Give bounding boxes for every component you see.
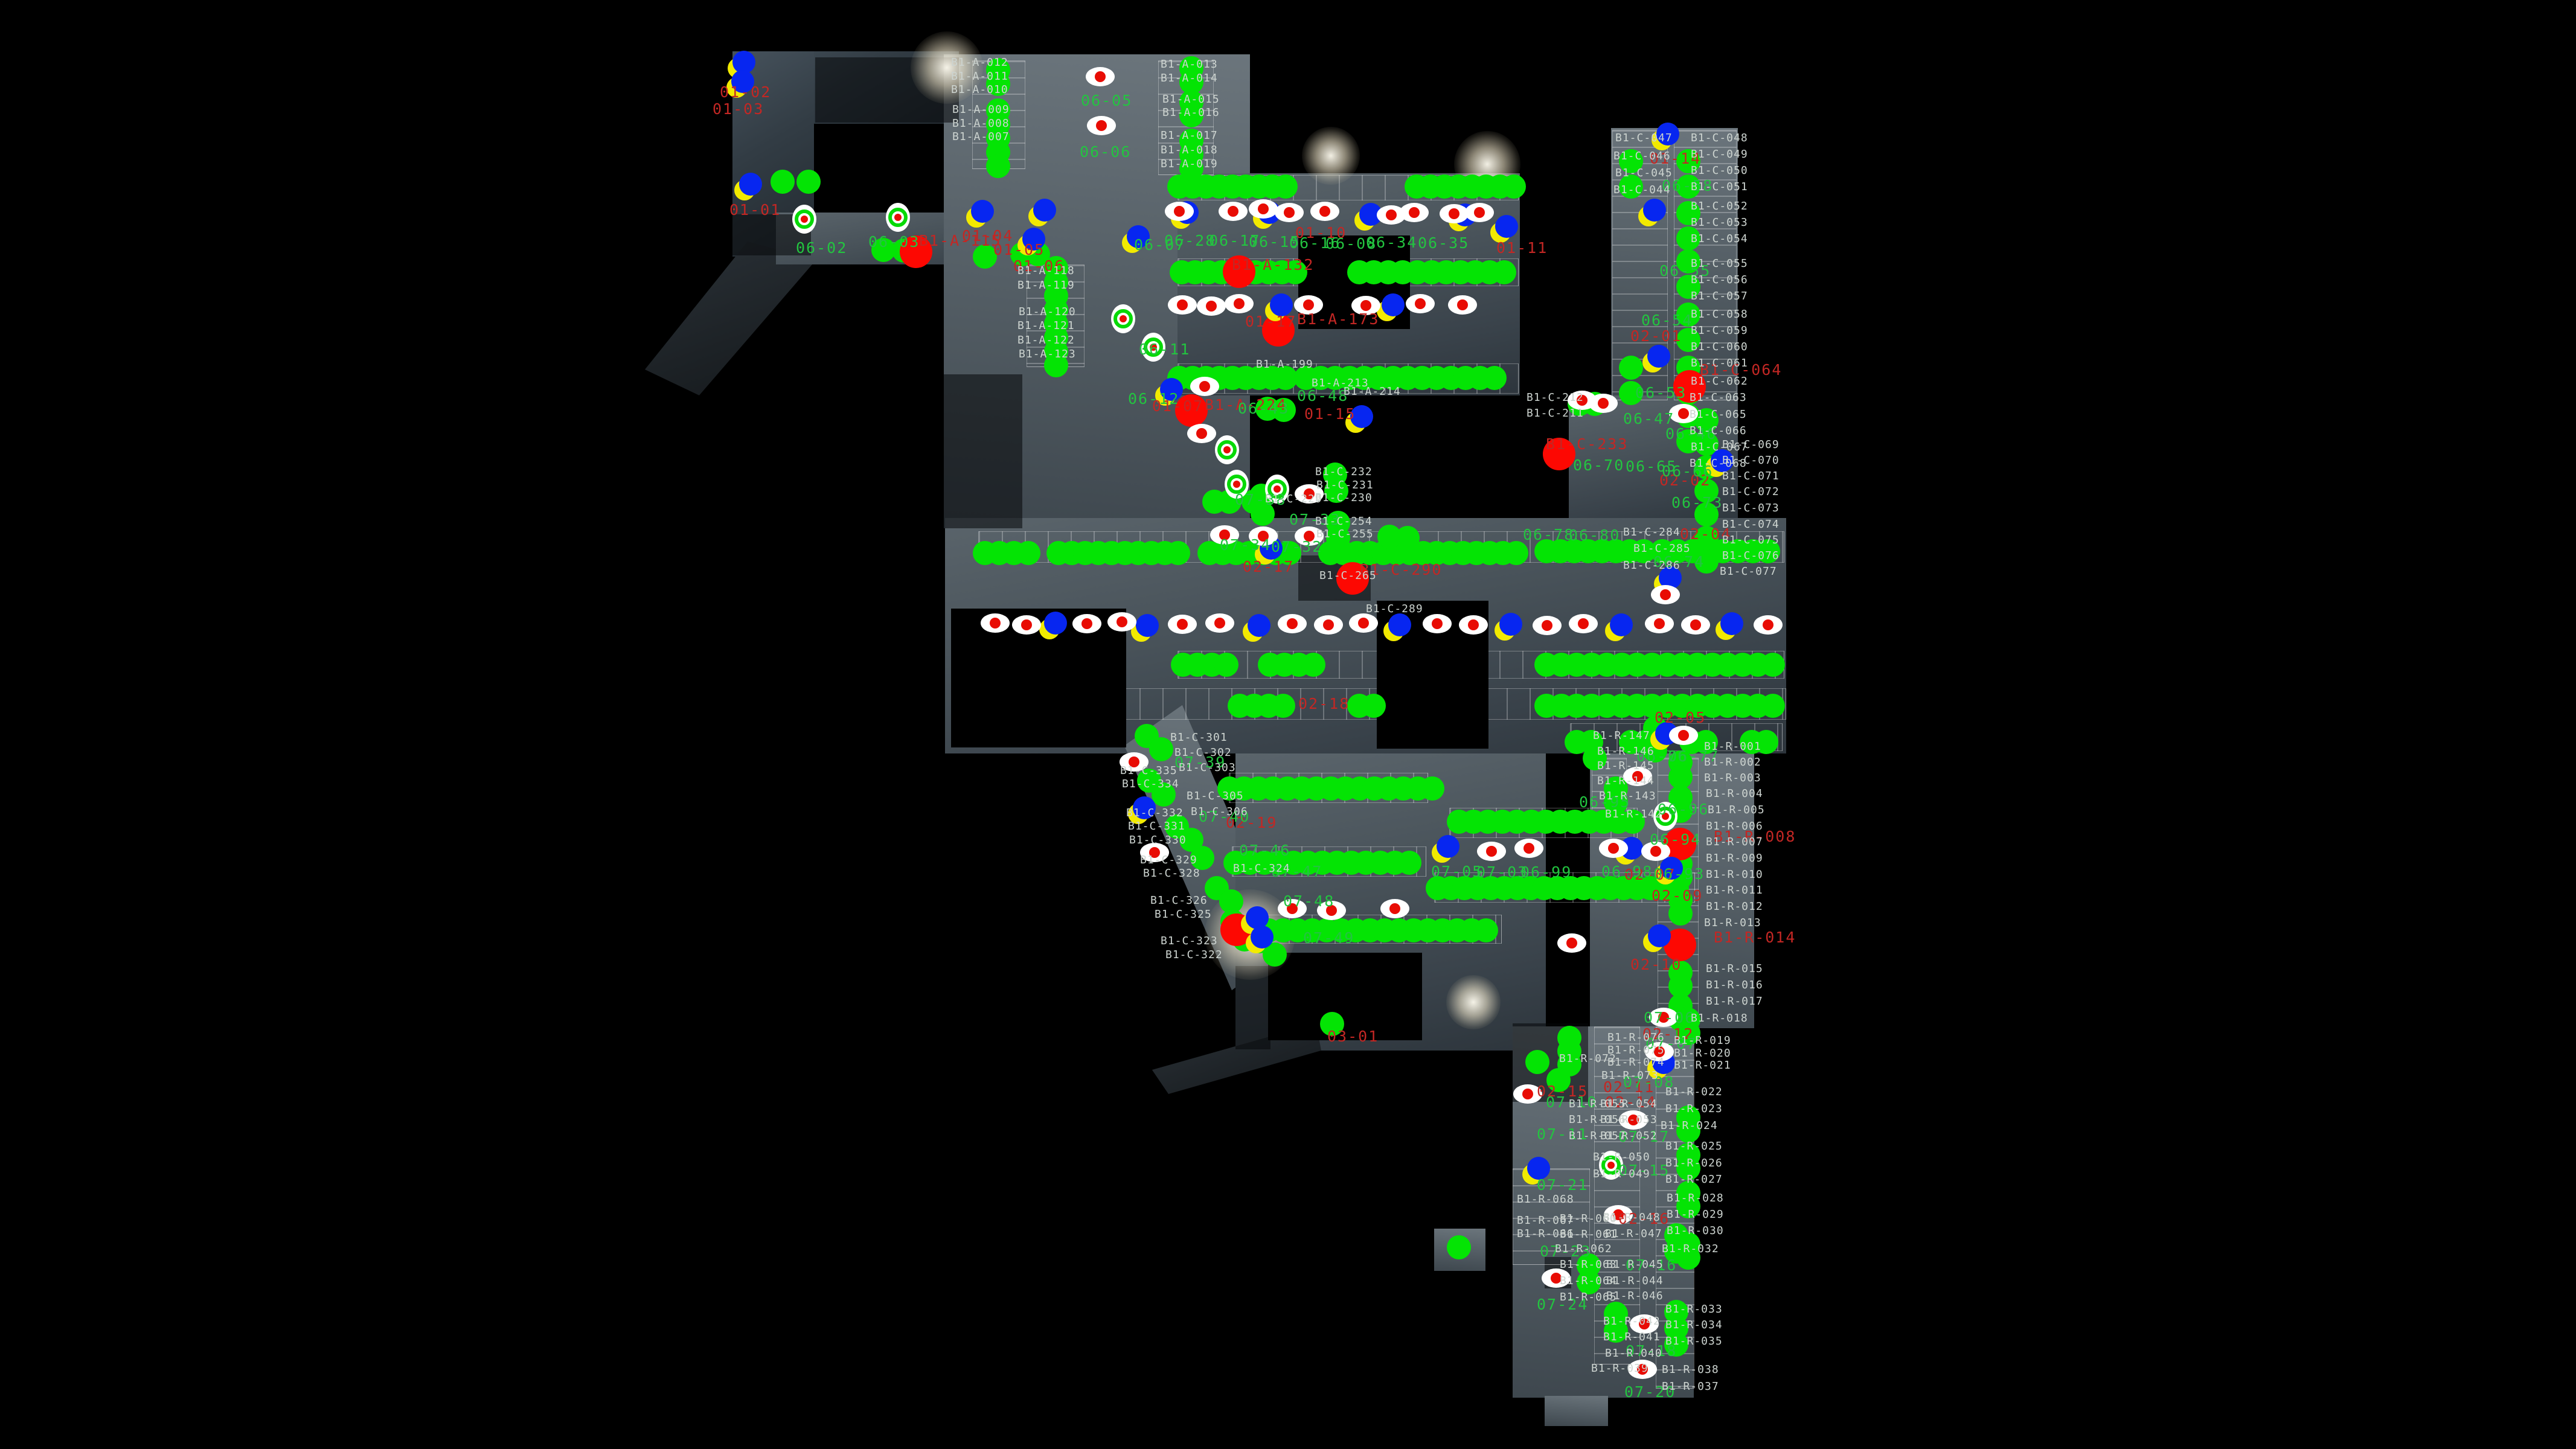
checker-target-marker[interactable] [1205,613,1234,633]
bay-label-white: B1-R-068 [1517,1194,1574,1205]
scan-marker-green[interactable] [1761,694,1785,718]
checker-target-marker[interactable] [1087,116,1116,135]
scan-marker-green[interactable] [1504,541,1528,565]
bay-label-white: B1-R-054 [1600,1099,1658,1110]
checker-target-ring-marker[interactable] [1111,304,1135,333]
bay-label-white: B1-R-004 [1706,788,1763,799]
bay-label-white: B1-R-019 [1674,1035,1731,1046]
bay-label-white: B1-C-072 [1722,487,1780,497]
floor-shadow [944,374,1022,528]
scan-label-green: 06-35 [1418,235,1469,251]
scan-label-red: 02-18 [1298,696,1350,711]
bay-label-white: B1-C-322 [1165,950,1223,961]
bay-label-white: B1-A-015 [1162,94,1220,105]
checker-target-ring-marker[interactable] [792,205,816,234]
bay-label-white: B1-C-050 [1691,165,1748,176]
sphere-target-marker[interactable] [1044,612,1067,635]
bay-label-white: B1-C-330 [1129,835,1187,846]
bay-label-white: B1-R-142 [1605,809,1662,820]
bay-label-white: B1-R-028 [1667,1193,1724,1204]
bay-label-white: B1-A-118 [1017,266,1075,277]
scan-label-green: 06-34 [1366,235,1417,250]
bay-label-white: B1-C-057 [1691,291,1748,302]
scan-label-green: 06-12 [1128,391,1179,406]
scan-label-red: 02-09 [1652,888,1703,903]
scan-label-green: 06-03 [868,234,920,249]
bay-label-white: B1-C-048 [1691,133,1748,144]
bay-label-white: B1-C-069 [1722,440,1780,450]
checker-target-marker[interactable] [1533,616,1562,635]
bay-label-white: B1-R-017 [1706,996,1763,1007]
bay-label-white: B1-R-052 [1600,1131,1658,1142]
sphere-target-marker[interactable] [739,173,762,196]
checker-target-marker[interactable] [1514,839,1543,858]
sphere-target-marker[interactable] [1643,199,1666,222]
scan-marker-green[interactable] [1274,174,1298,199]
checker-target-ring-marker[interactable] [886,203,910,232]
sphere-target-marker[interactable] [1251,926,1274,948]
checker-target-marker[interactable] [1190,377,1219,396]
bay-label-white: B1-C-324 [1233,863,1290,874]
bay-label-white: B1-A-007 [952,132,1010,142]
scan-marker-green[interactable] [1362,694,1386,718]
bay-label-white: B1-A-119 [1017,280,1075,291]
bay-label-white: B1-C-071 [1722,471,1780,482]
scan-label-red: B1-A-173 [1297,312,1379,327]
bay-label-white: B1-R-053 [1600,1115,1658,1125]
scan-label-green: 07-34 [1220,537,1271,552]
scan-label-green: 06-73 [1671,495,1723,510]
bay-label-white: B1-C-289 [1366,604,1423,615]
bay-label-white: B1-R-022 [1665,1087,1723,1098]
bay-label-white: B1-C-077 [1720,566,1777,577]
bay-label-white: B1-C-074 [1722,519,1780,530]
bay-label-white: B1-A-013 [1161,59,1218,70]
bay-label-white: B1-A-008 [952,118,1010,129]
bay-label-white: B1-C-049 [1691,149,1748,160]
bay-label-white: B1-C-051 [1691,182,1748,193]
bay-label-white: B1-C-255 [1316,529,1374,540]
bay-label-white: B1-R-003 [1704,773,1761,784]
checker-target-marker[interactable] [1557,933,1586,953]
bay-label-white: B1-R-026 [1665,1158,1723,1169]
checker-target-marker[interactable] [1278,614,1307,633]
scan-label-red: 02-05 [1655,710,1706,725]
checker-target-marker[interactable] [1669,726,1698,745]
scan-label-green: 07-49 [1303,930,1354,945]
bay-label-white: B1-A-018 [1161,145,1218,156]
checker-target-marker[interactable] [1187,424,1216,443]
scan-label-green: 07-46 [1239,843,1290,858]
scan-label-green: 07-32 [1271,539,1322,554]
sphere-target-marker[interactable] [1499,613,1522,636]
checker-target-marker[interactable] [1477,842,1506,861]
scan-label-green: 07-03 [1476,865,1528,880]
bay-label-white: B1-C-058 [1691,309,1748,320]
bay-label-white: B1-R-033 [1665,1304,1723,1315]
bay-label-white: B1-C-229 [1265,494,1322,505]
bay-label-white: B1-C-044 [1613,185,1671,196]
bay-label-white: B1-C-303 [1179,763,1236,773]
checker-target-marker[interactable] [1107,612,1136,632]
bay-label-white: B1-R-076 [1607,1032,1665,1043]
bay-label-white: B1-R-040 [1605,1348,1662,1359]
scan-marker-green[interactable] [1149,737,1173,761]
bay-label-white: B1-A-012 [951,57,1008,68]
checker-target-marker[interactable] [1459,615,1488,635]
scan-label-red: 02-01 [1630,328,1682,344]
scan-label-green: 06-99 [1520,865,1572,880]
scan-marker-green[interactable] [1166,541,1190,565]
bay-label-white: B1-C-212 [1527,392,1584,403]
scan-marker-green[interactable] [796,170,821,194]
bay-label-white: B1-C-059 [1691,325,1748,336]
scan-label-red: 02-10 [1630,957,1682,972]
bay-label-white: B1-R-146 [1597,746,1655,757]
checker-target-marker[interactable] [1400,203,1429,222]
bay-label-white: B1-R-001 [1704,741,1761,752]
bay-label-white: B1-R-015 [1706,964,1763,974]
bay-label-white: B1-C-054 [1691,234,1748,245]
bay-label-white: B1-C-325 [1155,909,1212,920]
bay-label-white: B1-R-023 [1665,1104,1723,1115]
bay-label-white: B1-A-011 [951,71,1008,82]
checker-target-marker[interactable] [1440,204,1469,223]
checker-target-marker[interactable] [1086,67,1115,86]
bay-label-white: B1-R-027 [1665,1174,1723,1185]
sphere-target-marker[interactable] [1382,293,1405,316]
bay-label-white: B1-R-032 [1662,1244,1719,1255]
bay-label-white: B1-C-331 [1128,821,1185,832]
scan-label-red: 01-17 [1245,314,1296,329]
bay-label-white: B1-R-035 [1665,1336,1723,1347]
scan-label-green: 07-06 [1644,1010,1695,1025]
scan-marker-green[interactable] [986,154,1010,178]
bay-label-white: B1-R-020 [1674,1048,1731,1059]
bay-label-white: B1-C-065 [1690,409,1747,420]
scan-label-green: 06-53 [1635,385,1687,400]
bay-label-white: B1-C-254 [1315,516,1373,527]
light-flare [1302,127,1360,185]
bay-label-white: B1-C-335 [1120,766,1177,776]
scan-marker-green[interactable] [1761,653,1785,677]
bay-label-white: B1-C-060 [1691,342,1748,353]
bay-label-white: B1-C-334 [1122,779,1179,790]
scan-label-green: 06-48 [1297,388,1348,403]
sphere-target-marker[interactable] [1495,215,1518,238]
checker-target-marker[interactable] [1406,294,1435,313]
sphere-target-marker[interactable] [971,200,994,223]
scan-marker-green[interactable] [1214,653,1238,677]
bay-label-white: B1-A-009 [952,104,1010,115]
bay-label-white: B1-C-302 [1174,747,1232,758]
bay-label-white: B1-R-011 [1706,885,1763,896]
scan-label-red: B1-R-014 [1714,930,1796,945]
scan-label-green: 06-06 [1080,144,1131,159]
bay-label-white: B1-R-010 [1706,869,1763,880]
bay-label-white: B1-C-232 [1315,467,1373,478]
bay-label-white: B1-C-045 [1615,168,1673,179]
scan-label-green: 06-98 [1601,864,1653,879]
sphere-target-marker[interactable] [1610,613,1633,636]
scan-label-red: 01-15 [1304,406,1356,421]
sphere-target-marker[interactable] [1033,199,1056,222]
scan-label-red: 03-01 [1327,1029,1379,1044]
scan-label-green: 06-93 [1653,866,1705,881]
checker-target-marker[interactable] [1380,899,1409,918]
bay-label-white: B1-A-214 [1344,386,1401,397]
sphere-target-marker[interactable] [1647,345,1670,368]
bay-label-white: B1-A-016 [1162,107,1220,118]
bay-label-white: B1-C-061 [1691,358,1748,369]
scan-label-red: 01-02 [720,85,771,100]
bay-label-white: B1-C-070 [1722,455,1780,466]
bay-label-white: B1-R-042 [1603,1316,1661,1327]
scan-label-green: 06-80 [1569,528,1620,543]
bay-label-white: B1-R-016 [1706,980,1763,991]
bay-label-white: B1-R-072 [1559,1054,1616,1064]
checker-target-marker[interactable] [1219,202,1248,221]
sphere-target-marker[interactable] [1648,924,1671,947]
checker-target-marker[interactable] [1465,203,1494,222]
bay-label-white: B1-C-305 [1187,791,1244,802]
bay-label-white: B1-C-047 [1615,133,1673,144]
checker-target-ring-marker[interactable] [1215,435,1239,464]
bay-label-white: B1-R-009 [1706,853,1763,864]
scan-label-green: 06-43 [1238,401,1289,416]
bay-label-white: B1-C-052 [1691,201,1748,212]
checker-target-marker[interactable] [1197,296,1226,316]
scan-marker-green[interactable] [1619,356,1643,380]
checker-target-marker[interactable] [1249,199,1278,219]
checker-target-marker[interactable] [1072,614,1101,633]
bay-label-white: B1-C-323 [1161,936,1218,947]
scan-marker-green[interactable] [1301,653,1325,677]
bay-label-white: B1-R-002 [1704,757,1761,768]
scan-marker-green[interactable] [771,170,795,194]
bay-label-white: B1-R-034 [1665,1320,1723,1331]
bay-label-white: B1-R-048 [1603,1212,1661,1223]
bay-label-white: B1-C-055 [1691,258,1748,269]
bay-label-white: B1-C-285 [1633,543,1691,554]
scan-label-green: 06-28 [1164,233,1216,248]
bay-label-white: B1-C-286 [1623,560,1680,571]
light-flare [1446,975,1501,1029]
bay-label-white: B1-R-024 [1661,1121,1718,1131]
bay-label-white: B1-R-047 [1605,1229,1662,1239]
bay-label-white: B1-R-029 [1667,1209,1724,1220]
bay-label-white: B1-R-050 [1593,1152,1650,1163]
checker-target-marker[interactable] [1599,839,1628,858]
bay-label-white: B1-C-265 [1319,571,1377,581]
bay-label-white: B1-R-007 [1706,837,1763,848]
scan-label-green: 06-11 [1139,342,1190,357]
sphere-target-marker[interactable] [1388,613,1411,636]
scan-label-green: 07-21 [1537,1177,1588,1192]
scan-marker-green[interactable] [1474,918,1498,942]
scan-marker-green[interactable] [1447,1235,1471,1259]
checker-target-marker[interactable] [1225,294,1254,313]
checker-target-marker[interactable] [1168,615,1197,634]
scan-label-red: 01-11 [1496,240,1548,255]
bay-label-white: B1-C-326 [1150,895,1208,906]
scan-label-green: 06-96 [1658,802,1709,817]
bay-label-white: B1-R-046 [1606,1291,1664,1302]
scan-map-canvas[interactable]: 01-0201-0301-01B1-A-11501-0401-0501-0601… [0,0,2576,1449]
checker-target-marker[interactable] [1589,394,1618,413]
bay-label-white: B1-C-328 [1143,868,1200,879]
bay-label-white: B1-A-122 [1017,335,1075,346]
bay-label-white: B1-R-049 [1593,1169,1650,1180]
scan-label-green: 06-47 [1623,411,1674,426]
scan-label-green: 07-48 [1283,894,1334,909]
bay-label-white: B1-C-301 [1170,732,1228,743]
bay-label-white: B1-A-199 [1256,359,1313,370]
bay-label-white: B1-C-073 [1722,503,1780,514]
scan-label-red: 02-17 [1243,559,1294,574]
checker-target-marker[interactable] [1569,614,1598,633]
bay-label-white: B1-R-012 [1706,901,1763,912]
bay-label-white: B1-R-045 [1606,1259,1664,1270]
bay-label-white: B1-C-063 [1690,392,1747,403]
bay-label-white: B1-R-144 [1597,776,1655,787]
checker-target-marker[interactable] [1012,615,1041,635]
bay-label-white: B1-R-062 [1555,1244,1612,1255]
scan-marker-green[interactable] [1420,776,1444,801]
scan-marker-green[interactable] [1525,1050,1549,1074]
bay-label-white: B1-C-062 [1691,376,1748,387]
bay-label-white: B1-R-145 [1597,761,1655,772]
bay-label-white: B1-C-066 [1690,426,1747,437]
floor-region [1545,1396,1608,1426]
bay-label-white: B1-R-021 [1674,1060,1731,1071]
scan-marker-green[interactable] [1395,526,1420,550]
bay-label-white: B1-A-019 [1161,159,1218,170]
scan-marker-green[interactable] [1502,174,1526,199]
scan-label-green: 06-78 [1523,527,1574,542]
bay-label-white: B1-R-044 [1606,1276,1664,1287]
scan-label-green: 06-70 [1573,458,1624,473]
bay-label-white: B1-C-230 [1315,493,1373,504]
bay-label-white: B1-C-046 [1613,151,1671,162]
bay-label-white: B1-C-075 [1722,535,1780,546]
checker-target-marker[interactable] [1448,295,1477,315]
bay-label-white: B1-C-284 [1623,527,1680,538]
sphere-target-marker[interactable] [1720,612,1743,635]
checker-target-marker[interactable] [1310,202,1339,221]
checker-target-marker[interactable] [1314,615,1343,635]
checker-target-marker[interactable] [1754,615,1783,635]
bay-label-white: B1-R-030 [1667,1226,1724,1236]
bay-label-white: B1-R-006 [1706,821,1763,832]
bay-label-white: B1-C-076 [1722,551,1780,561]
scan-label-red: 01-05 [993,242,1045,257]
scan-marker-green[interactable] [1492,260,1516,284]
bay-label-white: B1-A-010 [951,85,1008,95]
bay-label-white: B1-C-329 [1140,855,1197,866]
checker-target-marker[interactable] [1423,614,1452,633]
bay-label-white: B1-A-120 [1019,307,1076,318]
scan-label-green: 06-94 [1650,832,1701,847]
bay-label-white: B1-R-147 [1593,731,1650,741]
bay-label-white: B1-C-053 [1691,217,1748,228]
bay-label-white: B1-R-039 [1591,1363,1648,1374]
sphere-target-marker[interactable] [1136,614,1159,637]
scan-marker-green[interactable] [1397,851,1421,875]
scan-label-red: B1-C-233 [1546,437,1628,452]
scan-marker-green[interactable] [1016,541,1040,565]
bay-label-white: B1-R-025 [1665,1141,1723,1152]
sphere-target-marker[interactable] [1248,614,1270,637]
scan-label-green: 06-02 [796,240,847,255]
bay-label-white: B1-R-005 [1708,805,1765,816]
bay-label-white: B1-A-121 [1017,321,1075,331]
bay-label-white: B1-A-014 [1161,73,1218,84]
bay-label-white: B1-C-306 [1191,807,1248,817]
scan-label-green: 06-05 [1081,93,1132,108]
scan-marker-green[interactable] [1482,366,1507,390]
checker-target-marker[interactable] [1349,613,1378,633]
sphere-target-marker[interactable] [1437,835,1459,858]
scan-label-red: 01-03 [713,101,764,117]
bay-label-white: B1-R-013 [1704,918,1761,929]
scan-label-green: 06-54 [1641,313,1693,328]
bay-label-white: B1-R-073 [1601,1070,1659,1081]
bay-label-white: B1-A-017 [1161,130,1218,141]
scan-marker-green[interactable] [1271,694,1295,718]
bay-label-white: B1-C-056 [1691,275,1748,286]
scan-label-green: 07-05 [1431,864,1482,879]
scan-marker-green[interactable] [1668,901,1693,926]
checker-target-marker[interactable] [1275,203,1304,222]
checker-target-marker[interactable] [1645,614,1674,633]
scan-label-red: B1-A-132 [1232,257,1314,272]
bay-label-white: B1-R-037 [1662,1381,1719,1392]
bay-label-white: B1-A-123 [1019,349,1076,360]
checker-target-marker[interactable] [981,613,1010,633]
bay-label-white: B1-R-143 [1599,791,1656,802]
bay-label-white: B1-C-231 [1316,480,1374,491]
bay-label-white: B1-C-211 [1527,408,1584,419]
bay-label-white: B1-R-041 [1603,1332,1661,1343]
checker-target-marker[interactable] [1681,615,1710,635]
checker-target-marker[interactable] [1651,585,1680,604]
bay-label-white: B1-C-332 [1126,808,1184,819]
checker-target-marker[interactable] [1165,202,1194,221]
checker-target-marker[interactable] [1168,295,1197,315]
bay-label-white: B1-R-038 [1662,1364,1719,1375]
scan-label-red: 01-01 [729,202,781,217]
bay-label-white: B1-R-018 [1691,1013,1748,1024]
